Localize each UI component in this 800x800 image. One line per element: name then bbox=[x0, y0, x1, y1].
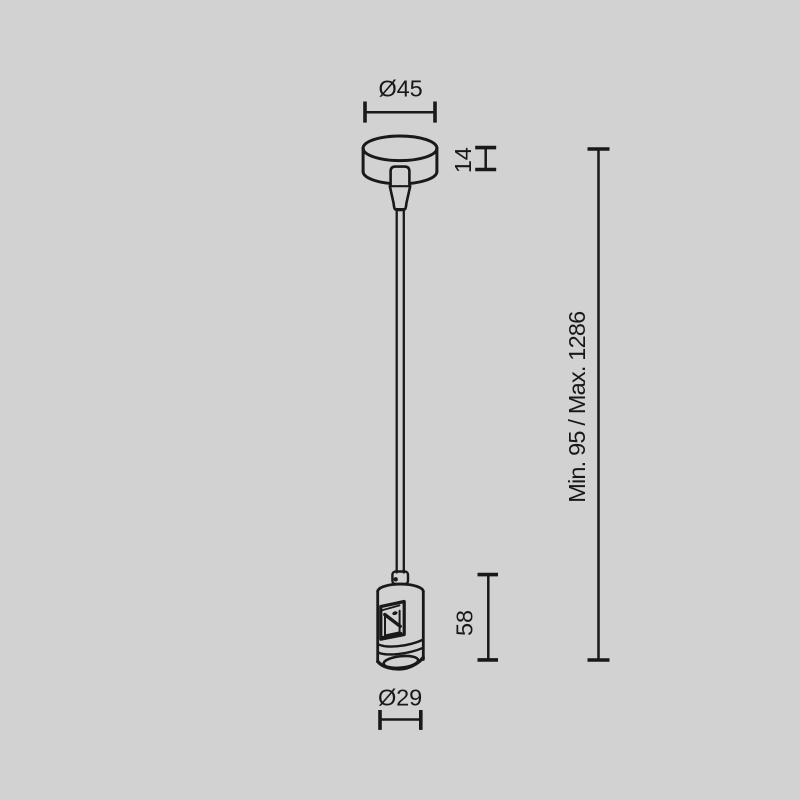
svg-text:Ø45: Ø45 bbox=[378, 75, 422, 101]
svg-text:Ø29: Ø29 bbox=[378, 684, 422, 710]
svg-text:Min. 95 / Max. 1286: Min. 95 / Max. 1286 bbox=[564, 311, 590, 503]
svg-text:14: 14 bbox=[450, 147, 476, 173]
svg-text:58: 58 bbox=[452, 610, 478, 636]
